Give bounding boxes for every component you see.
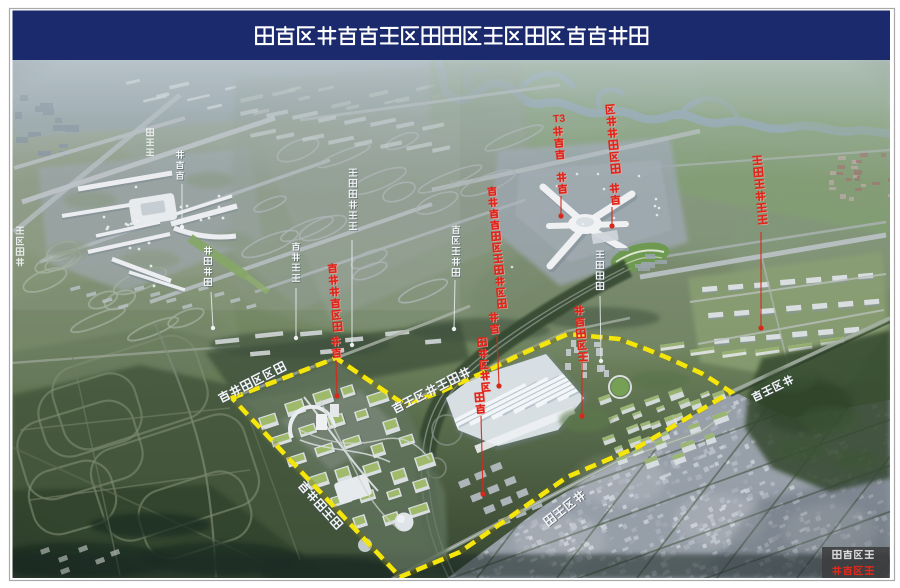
svg-text:T3: T3 — [552, 112, 565, 125]
